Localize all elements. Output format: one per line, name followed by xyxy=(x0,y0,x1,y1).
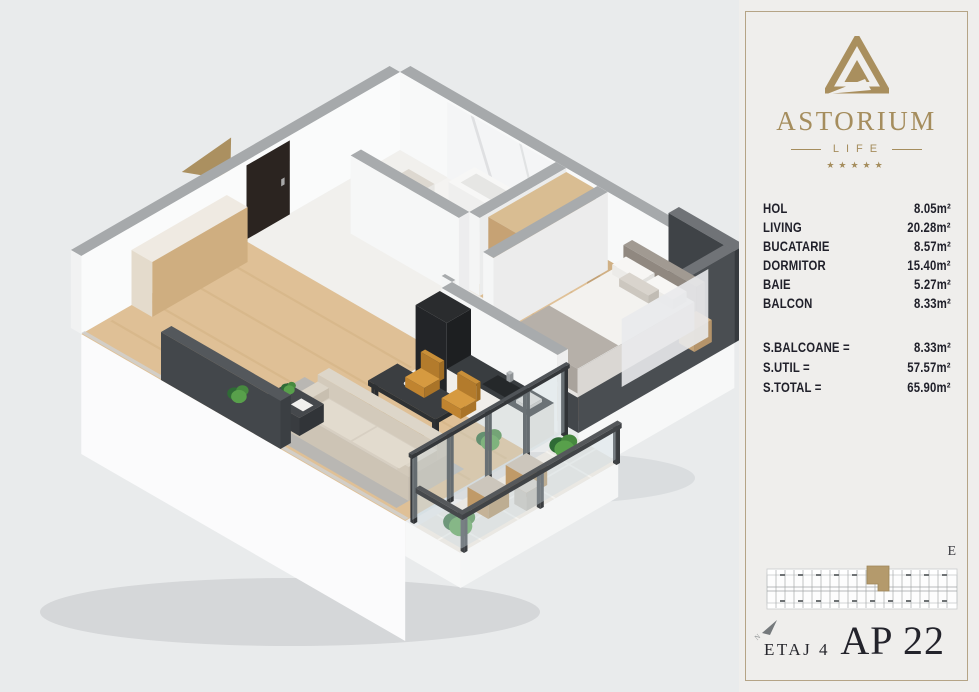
room-area: 8.57m² xyxy=(914,239,951,254)
total-label: S.BALCOANE = xyxy=(763,340,850,355)
room-label: LIVING xyxy=(763,220,802,235)
brand-tagline: LIFE xyxy=(833,143,884,155)
tagline-dash-right xyxy=(892,149,922,150)
room-row-dormitor: DORMITOR 15.40m² xyxy=(763,256,951,275)
room-label: BAIE xyxy=(763,277,791,292)
room-row-baie: BAIE 5.27m² xyxy=(763,275,951,294)
room-row-living: LIVING 20.28m² xyxy=(763,218,951,237)
brand-name: ASTORIUM xyxy=(776,106,937,137)
unit-identity-row: ETAJ 4 AP 22 xyxy=(764,618,945,664)
total-row-util: S.UTIL = 57.57m² xyxy=(763,357,951,377)
info-panel: ASTORIUM LIFE ★★★★★ HOL 8.05m² LIVING 20… xyxy=(739,0,979,692)
area-totals-list: S.BALCOANE = 8.33m² S.UTIL = 57.57m² S.T… xyxy=(763,337,951,397)
building-section-letter: E xyxy=(947,544,956,560)
tagline-dash-left xyxy=(791,149,821,150)
room-area: 8.05m² xyxy=(914,201,951,216)
room-area: 20.28m² xyxy=(907,220,950,235)
total-row-total: S.TOTAL = 65.90m² xyxy=(763,377,951,397)
logo-triangle-icon xyxy=(825,36,889,94)
room-label: BUCATARIE xyxy=(763,239,830,254)
room-areas-list: HOL 8.05m² LIVING 20.28m² BUCATARIE 8.57… xyxy=(763,199,951,313)
floor-label: ETAJ 4 xyxy=(764,640,830,660)
room-area: 15.40m² xyxy=(907,258,950,273)
total-row-balcoane: S.BALCOANE = 8.33m² xyxy=(763,337,951,357)
brand-logo: ASTORIUM LIFE ★★★★★ xyxy=(776,36,937,171)
building-floor-map xyxy=(764,562,960,614)
room-label: HOL xyxy=(763,201,787,216)
total-label: S.UTIL = xyxy=(763,360,810,375)
isometric-apartment-illustration xyxy=(0,0,740,692)
total-value: 57.57m² xyxy=(907,360,950,375)
brand-tagline-row: LIFE xyxy=(791,143,922,155)
room-area: 5.27m² xyxy=(914,277,951,292)
room-label: DORMITOR xyxy=(763,258,826,273)
room-row-balcon: BALCON 8.33m² xyxy=(763,294,951,313)
room-row-bucatarie: BUCATARIE 8.57m² xyxy=(763,237,951,256)
floor-plan-render xyxy=(0,0,740,692)
compass-letter: N xyxy=(754,633,762,642)
total-label: S.TOTAL = xyxy=(763,380,822,395)
total-value: 8.33m² xyxy=(914,340,951,355)
room-label: BALCON xyxy=(763,296,813,311)
apartment-number: AP 22 xyxy=(840,617,945,664)
room-area: 8.33m² xyxy=(914,296,951,311)
five-stars-icon: ★★★★★ xyxy=(826,160,886,171)
total-value: 65.90m² xyxy=(907,380,950,395)
room-row-hol: HOL 8.05m² xyxy=(763,199,951,218)
